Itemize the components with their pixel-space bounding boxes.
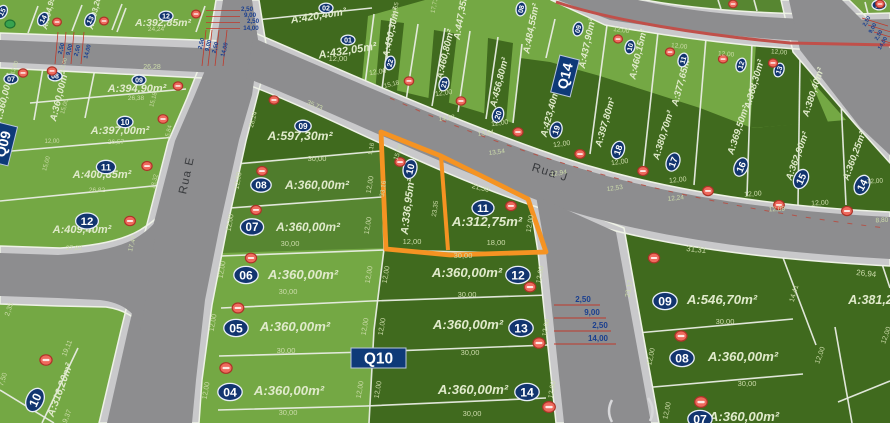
svg-text:12,00: 12,00	[867, 178, 884, 186]
svg-text:12,00: 12,00	[403, 237, 422, 246]
svg-text:27,82: 27,82	[66, 245, 83, 252]
svg-text:11: 11	[101, 162, 112, 173]
svg-text:A:360,00m²: A:360,00m²	[432, 317, 504, 332]
svg-text:12,00: 12,00	[811, 200, 829, 208]
svg-text:30,00: 30,00	[277, 346, 296, 355]
svg-text:12: 12	[162, 14, 170, 21]
svg-text:26,82: 26,82	[89, 187, 106, 194]
svg-text:12,00: 12,00	[771, 48, 788, 56]
svg-text:12,00: 12,00	[44, 139, 60, 145]
svg-text:10: 10	[121, 118, 130, 127]
svg-text:30,00: 30,00	[458, 290, 477, 299]
svg-text:12,00: 12,00	[718, 50, 735, 58]
svg-text:30,00: 30,00	[738, 379, 757, 388]
svg-text:2,50: 2,50	[575, 295, 591, 304]
svg-text:26,57: 26,57	[108, 139, 125, 146]
svg-text:Q10: Q10	[364, 351, 393, 368]
svg-text:06: 06	[239, 268, 253, 282]
svg-text:14: 14	[520, 385, 534, 399]
svg-text:30,00: 30,00	[308, 154, 327, 163]
svg-text:07: 07	[7, 77, 15, 84]
svg-text:12: 12	[81, 216, 94, 228]
svg-text:A:312,75m²: A:312,75m²	[451, 214, 523, 229]
svg-text:08: 08	[255, 181, 267, 192]
svg-text:08: 08	[675, 351, 689, 365]
svg-text:24,24: 24,24	[148, 26, 165, 33]
svg-text:A:360,00m²: A:360,00m²	[259, 319, 331, 334]
svg-text:9,00: 9,00	[584, 308, 600, 317]
svg-text:12,00: 12,00	[744, 190, 762, 198]
svg-text:07: 07	[693, 412, 707, 423]
svg-text:07: 07	[246, 221, 259, 234]
svg-text:A:360,00m²: A:360,00m²	[275, 220, 341, 234]
svg-text:02: 02	[322, 6, 330, 13]
svg-text:A:360,00m²: A:360,00m²	[437, 382, 509, 397]
svg-text:30,00: 30,00	[716, 317, 735, 326]
svg-text:14,00: 14,00	[243, 25, 259, 32]
svg-text:30,00: 30,00	[454, 251, 473, 260]
svg-text:13: 13	[514, 321, 528, 335]
svg-text:14,00: 14,00	[588, 334, 609, 343]
svg-text:09: 09	[658, 294, 672, 308]
svg-text:30,00: 30,00	[279, 287, 298, 296]
svg-text:08: 08	[518, 5, 526, 14]
svg-text:18,00: 18,00	[487, 238, 506, 247]
svg-text:11: 11	[477, 203, 489, 215]
svg-text:2,50: 2,50	[247, 18, 260, 25]
svg-text:05: 05	[229, 321, 243, 335]
svg-text:A:360,00m²: A:360,00m²	[267, 267, 339, 282]
svg-text:A:360,00m²: A:360,00m²	[431, 265, 503, 280]
svg-text:26,38: 26,38	[128, 95, 145, 102]
svg-text:A:546,70m²: A:546,70m²	[686, 292, 758, 307]
svg-text:26,28: 26,28	[143, 64, 161, 71]
svg-text:12,08: 12,08	[769, 206, 786, 214]
svg-text:30,00: 30,00	[463, 409, 482, 418]
svg-text:30,00: 30,00	[281, 239, 300, 248]
svg-text:A:381,20: A:381,20	[847, 293, 890, 307]
svg-text:A:360,00m²: A:360,00m²	[253, 383, 325, 398]
svg-text:01: 01	[344, 38, 352, 45]
svg-text:12: 12	[511, 268, 525, 282]
svg-text:12,00: 12,00	[329, 54, 348, 63]
svg-text:30,00: 30,00	[279, 408, 298, 417]
svg-text:30,00: 30,00	[461, 348, 480, 357]
svg-text:2,50: 2,50	[592, 321, 608, 330]
svg-text:A:360,00m²: A:360,00m²	[708, 409, 780, 423]
svg-text:04: 04	[223, 385, 237, 399]
svg-text:A:360,00m²: A:360,00m²	[707, 349, 779, 364]
svg-text:8,80: 8,80	[875, 217, 888, 225]
svg-text:09: 09	[135, 78, 143, 85]
svg-text:09: 09	[298, 122, 308, 131]
svg-text:A:360,00m²: A:360,00m²	[284, 178, 350, 192]
